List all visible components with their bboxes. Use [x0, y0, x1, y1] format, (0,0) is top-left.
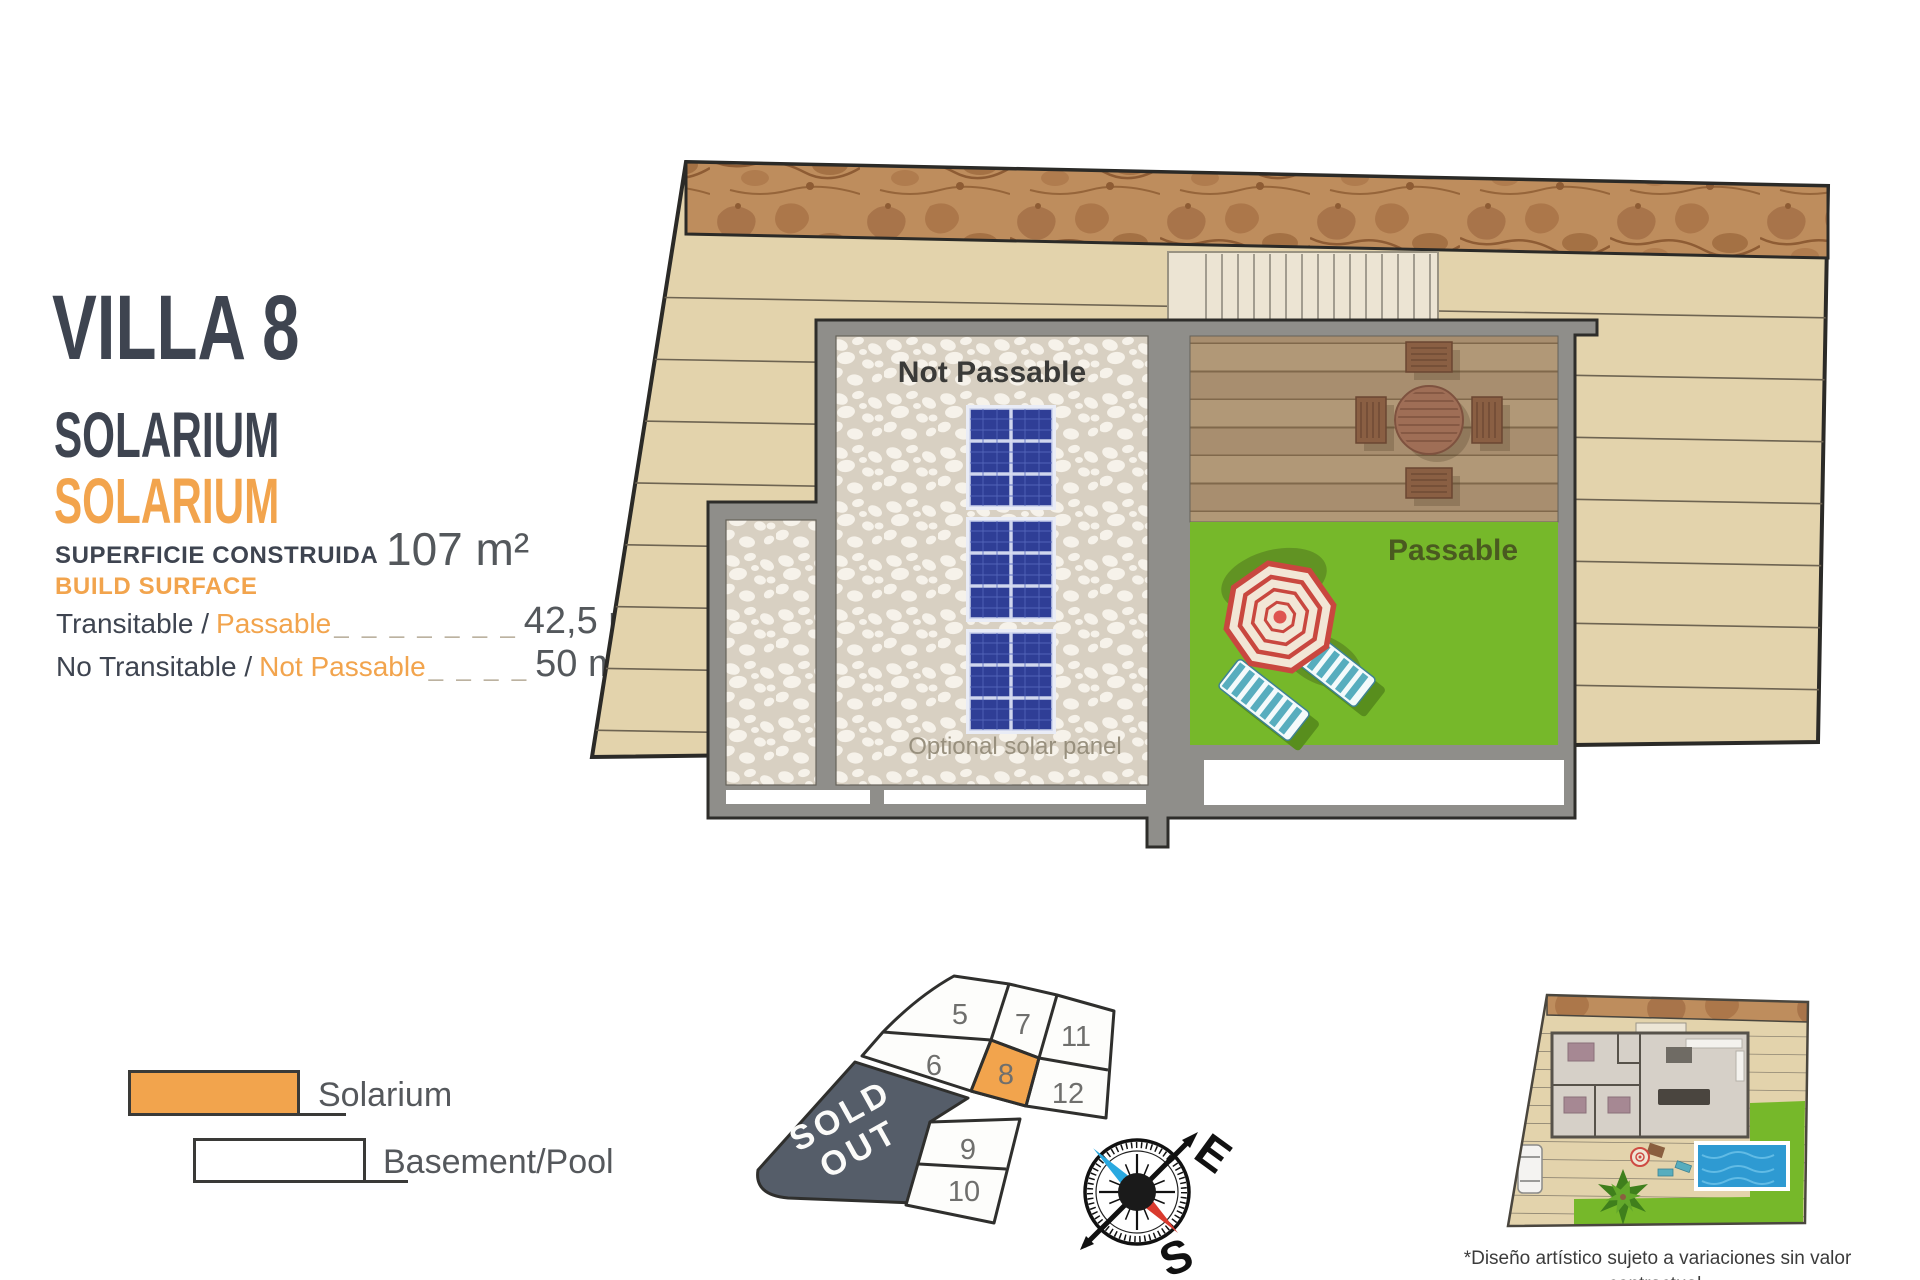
- disclaimer-line-1: *Diseño artístico sujeto a variaciones s…: [1425, 1246, 1890, 1280]
- plot-5: 5: [952, 999, 968, 1031]
- mini-house: [1552, 1033, 1748, 1137]
- stairs: [1168, 252, 1438, 322]
- passable-label: Passable: [1388, 534, 1518, 567]
- passable-label-en: Passable: [216, 608, 331, 640]
- leader-dashes: _ _ _ _ _ _ _: [334, 609, 518, 640]
- mini-parasol: [1631, 1148, 1649, 1166]
- plot-7: 7: [1015, 1009, 1031, 1041]
- plot-10: 10: [948, 1176, 980, 1208]
- legend-label-solarium: Solarium: [318, 1076, 452, 1115]
- build-surface-label-es: SUPERFICIE CONSTRUIDA: [55, 542, 378, 570]
- plot-9: 9: [960, 1134, 976, 1166]
- legend-swatch-underline: [128, 1113, 346, 1116]
- villa-site-thumbnail: [1490, 985, 1830, 1250]
- passable-label-es: Transitable /: [56, 608, 209, 640]
- not-passable-label: Not Passable: [898, 356, 1086, 389]
- legend-label-basement: Basement/Pool: [383, 1143, 614, 1182]
- not-passable-label-en: Not Passable: [259, 651, 426, 683]
- legend-swatch-solarium: [128, 1070, 300, 1116]
- disclaimer: *Diseño artístico sujeto a variaciones s…: [1425, 1246, 1890, 1280]
- solar-panels: [966, 405, 1056, 734]
- plot-8: 8: [998, 1059, 1014, 1091]
- page-title: VILLA 8: [52, 276, 300, 381]
- solar-panel-note: Optional solar panel: [908, 733, 1121, 760]
- not-passable-label-es: No Transitable /: [56, 651, 252, 683]
- compass-south-label: S: [1152, 1227, 1200, 1280]
- area-row-not-passable: No Transitable / Not Passable _ _ _ _ 50…: [56, 643, 632, 686]
- plot-6: 6: [926, 1050, 942, 1082]
- plot-12: 12: [1052, 1078, 1084, 1110]
- legend-swatch-underline: [193, 1180, 408, 1183]
- annex-area: [726, 520, 816, 785]
- subtitle-solarium-en: SOLARIUM: [54, 464, 279, 538]
- round-table: [1395, 386, 1463, 454]
- plot-11: 11: [1061, 1021, 1091, 1053]
- build-surface-label-en: BUILD SURFACE: [55, 573, 257, 601]
- solarium-floor-plan: Not Passable Passable Optional solar pan…: [560, 120, 1890, 920]
- compass-east-label: E: [1186, 1123, 1241, 1183]
- compass-rose: E S: [1080, 1120, 1250, 1280]
- leader-dashes: _ _ _ _: [429, 652, 530, 683]
- subtitle-solarium-es: SOLARIUM: [54, 398, 279, 472]
- build-surface-value: 107 m²: [386, 522, 529, 576]
- legend-swatch-basement: [193, 1138, 366, 1183]
- page: VILLA 8 SOLARIUM SOLARIUM SUPERFICIE CON…: [0, 0, 1920, 1280]
